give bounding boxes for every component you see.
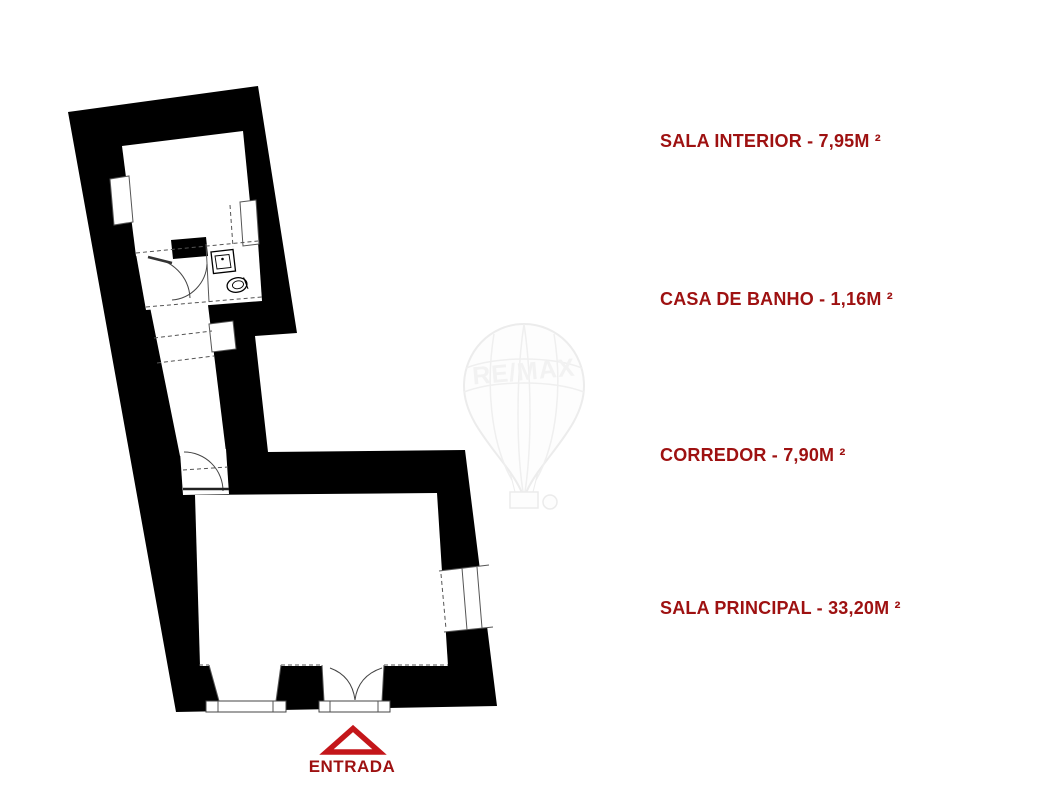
room-label-sala-interior: SALA INTERIOR - 7,95M ²: [660, 131, 881, 152]
interior-wall: [171, 237, 208, 259]
room-sala-principal: [195, 493, 448, 666]
entrance-opening: [322, 665, 384, 701]
floorplan-page: RE/MAX: [0, 0, 1048, 800]
remax-balloon-watermark: RE/MAX: [464, 324, 584, 509]
wall-niche: [209, 321, 236, 352]
room-label-sala-principal: SALA PRINCIPAL - 33,20M ²: [660, 598, 901, 619]
window-opening-bottom: [209, 665, 281, 701]
floor-plan-drawing: RE/MAX: [0, 0, 1048, 800]
entrance-marker-icon: [327, 729, 380, 753]
sink-icon: [211, 250, 236, 274]
room-label-corredor: CORREDOR - 7,90M ²: [660, 445, 846, 466]
entrance-label: ENTRADA: [309, 757, 396, 777]
room-label-casa-de-banho: CASA DE BANHO - 1,16M ²: [660, 289, 893, 310]
room-sala-interior: [122, 131, 254, 256]
